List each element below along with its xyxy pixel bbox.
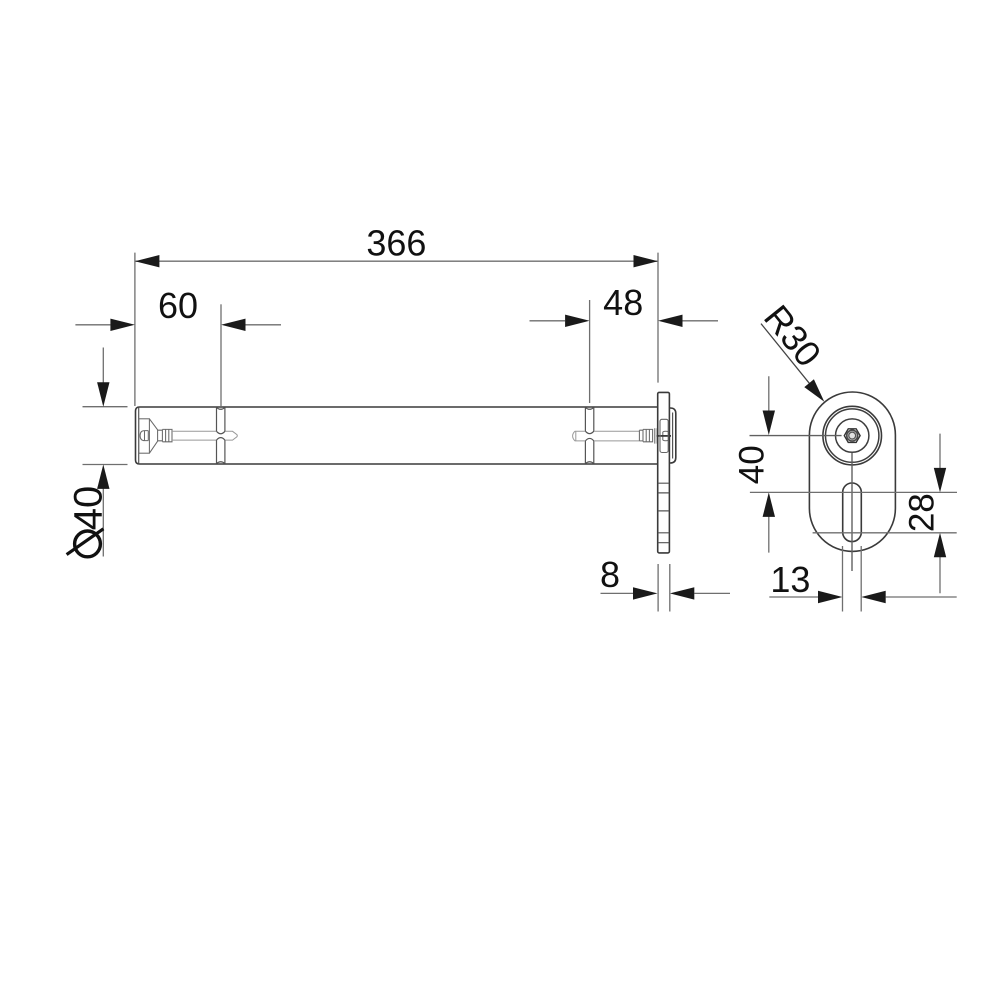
- svg-text:48: 48: [603, 282, 643, 323]
- svg-text:40: 40: [733, 445, 772, 484]
- svg-text:13: 13: [770, 559, 810, 600]
- svg-text:60: 60: [158, 285, 198, 326]
- svg-text:28: 28: [902, 493, 941, 532]
- svg-text:8: 8: [600, 554, 620, 595]
- svg-text:366: 366: [366, 223, 426, 264]
- svg-text:40: 40: [66, 486, 110, 531]
